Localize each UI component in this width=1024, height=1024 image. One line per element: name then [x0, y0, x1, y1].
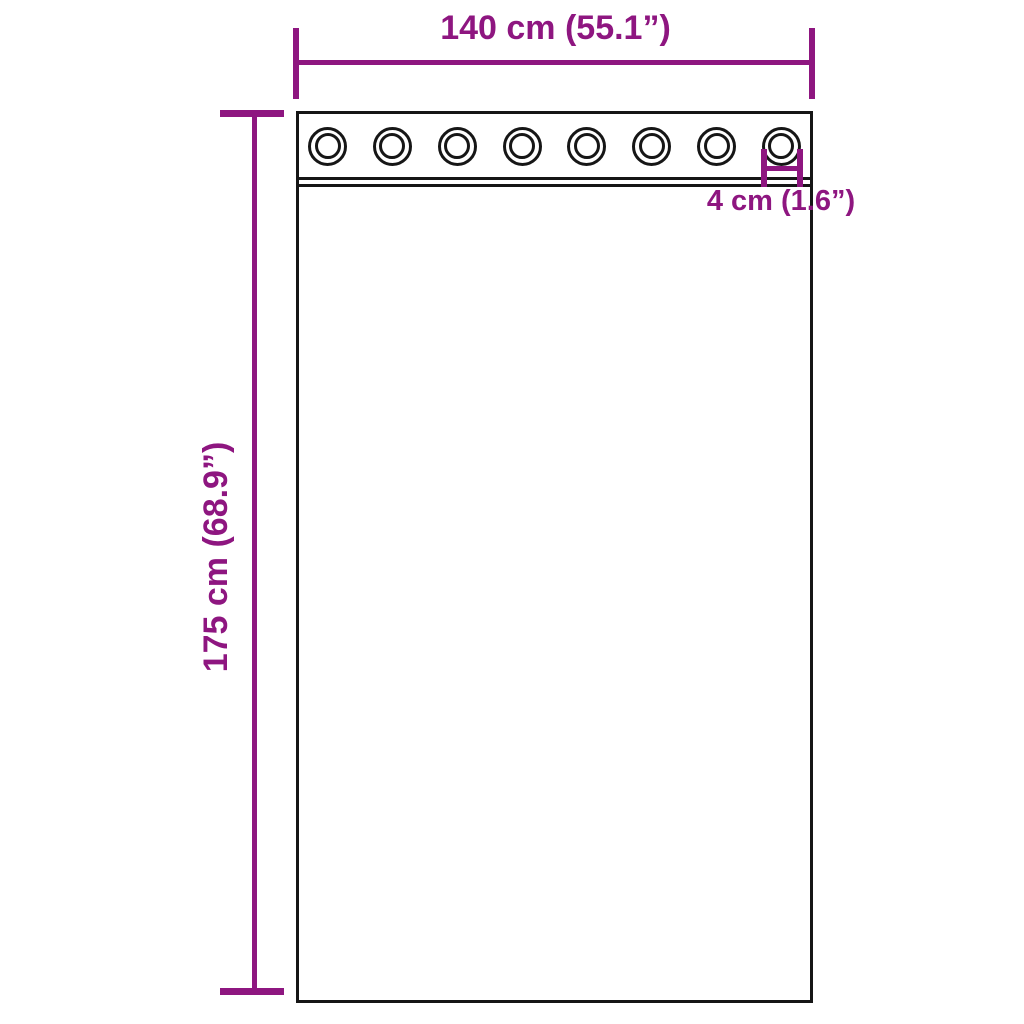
grommet-icon — [373, 127, 412, 166]
grommet-icon — [567, 127, 606, 166]
height-dimension-top-cap — [220, 110, 284, 117]
grommet-inner-ring — [444, 133, 470, 159]
height-dimension-label: 175 cm (68.9”) — [196, 307, 236, 807]
grommet-icon — [632, 127, 671, 166]
grommet-inner-ring — [379, 133, 405, 159]
grommet-dimension-line — [761, 166, 803, 171]
diagram-canvas: 140 cm (55.1”) 175 cm (68.9”) 4 cm (1.6”… — [0, 0, 1024, 1024]
grommet-icon — [503, 127, 542, 166]
width-dimension-right-cap — [809, 28, 815, 99]
curtain-outline — [296, 111, 813, 1003]
grommet-dimension-label: 4 cm (1.6”) — [631, 184, 931, 218]
grommet-inner-ring — [315, 133, 341, 159]
grommet-row — [299, 114, 810, 178]
width-dimension-label: 140 cm (55.1”) — [296, 8, 815, 48]
grommet-inner-ring — [704, 133, 730, 159]
width-dimension-left-cap — [293, 28, 299, 99]
grommet-inner-ring — [574, 133, 600, 159]
grommet-icon — [762, 127, 801, 166]
height-dimension-line — [252, 111, 257, 995]
grommet-inner-ring — [768, 133, 794, 159]
grommet-inner-ring — [639, 133, 665, 159]
height-dimension-bottom-cap — [220, 988, 284, 995]
grommet-icon — [697, 127, 736, 166]
header-band-line-upper — [299, 177, 810, 180]
grommet-icon — [308, 127, 347, 166]
width-dimension-line — [296, 60, 815, 65]
grommet-icon — [438, 127, 477, 166]
grommet-inner-ring — [509, 133, 535, 159]
